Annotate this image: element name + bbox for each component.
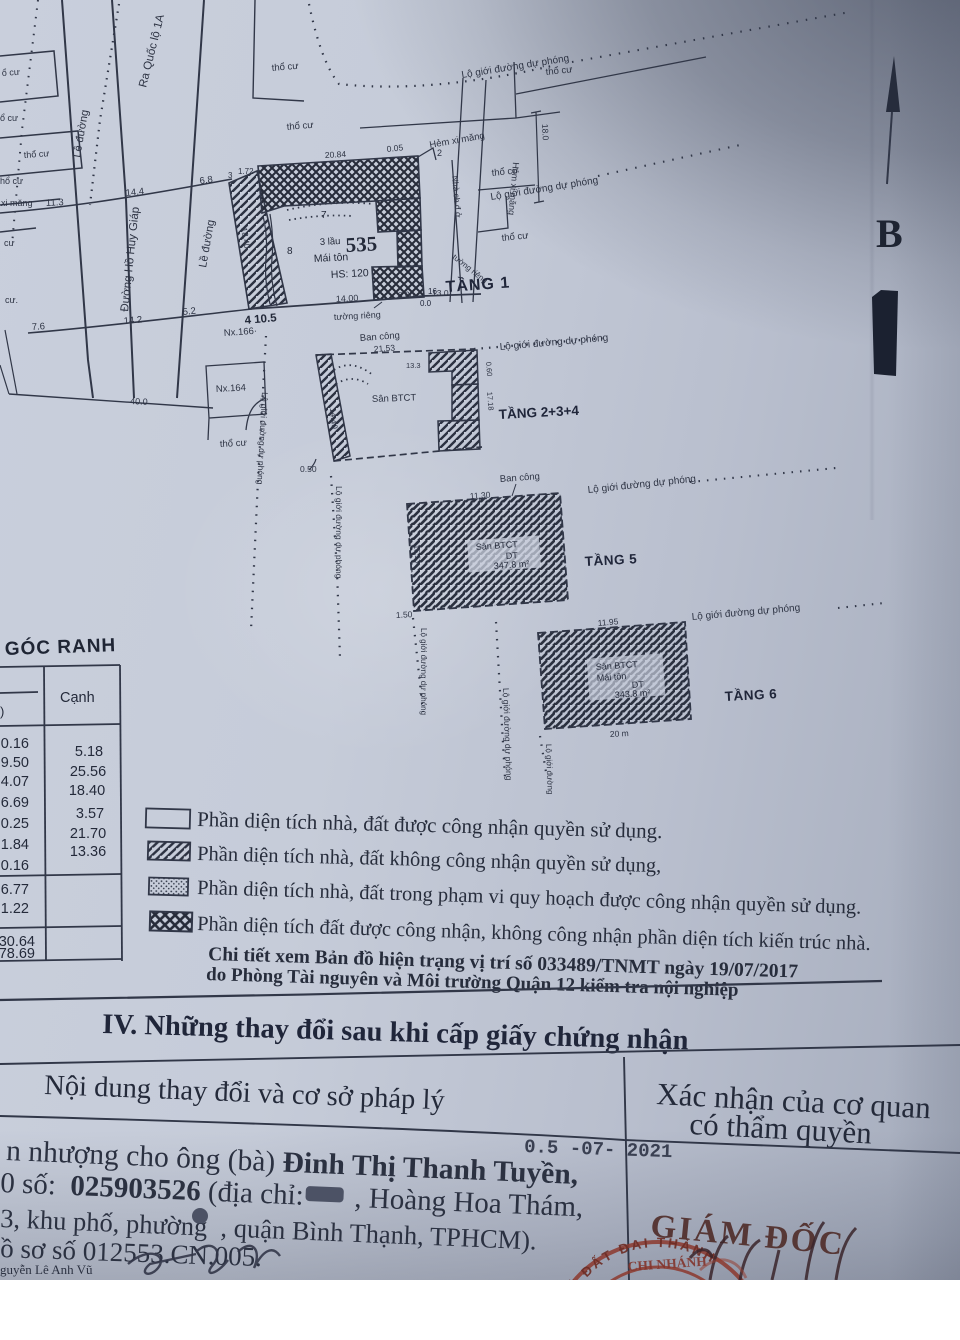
svg-text:6.00: 6.00 [398, 289, 415, 300]
svg-text:1.50: 1.50 [396, 609, 413, 620]
svg-text:6.69: 6.69 [1, 795, 29, 811]
svg-text:18.0: 18.0 [540, 124, 551, 141]
svg-text:Cạnh: Cạnh [60, 690, 95, 706]
svg-text:GÓC RANH: GÓC RANH [4, 634, 116, 660]
svg-text:cư: cư [4, 238, 15, 248]
svg-text:HS: 120: HS: 120 [331, 267, 370, 281]
svg-text:Phần diện tích nhà, đất trong: Phần diện tích nhà, đất trong phạm vi qu… [197, 877, 862, 919]
svg-text:6.77: 6.77 [1, 882, 29, 898]
svg-text:thổ cư: thổ cư [220, 438, 248, 450]
svg-text:8: 8 [287, 246, 293, 257]
svg-text:Lộ giới đường dự phóng: Lộ giới đường dự phóng [691, 603, 800, 623]
svg-text:Lộ giới đường dự phóng: Lộ giới đường dự phóng [499, 333, 608, 353]
svg-text:0.05: 0.05 [386, 142, 404, 154]
svg-text:9.50: 9.50 [1, 755, 29, 771]
svg-text:Lộ giới đường: Lộ giới đường [544, 744, 555, 795]
svg-text:5.18: 5.18 [75, 744, 103, 760]
svg-text:Sân BTCT: Sân BTCT [372, 392, 417, 405]
svg-text:4 10.5: 4 10.5 [244, 312, 277, 327]
svg-text:B: B [876, 211, 903, 256]
svg-text:7.6: 7.6 [31, 321, 45, 333]
svg-text:3.57: 3.57 [76, 806, 104, 822]
svg-text:Lộ giới đường dự phóng: Lộ giới đường dự phóng [334, 486, 344, 579]
svg-text:TẦNG 5: TẦNG 5 [584, 551, 637, 569]
svg-text:Đường Hồ Huy Giáp: Đường Hồ Huy Giáp [119, 206, 142, 312]
svg-text:Phần diện tích nhà, đất được c: Phần diện tích nhà, đất được công nhận q… [197, 807, 663, 843]
svg-text:13.3: 13.3 [406, 361, 421, 370]
svg-text:14.2: 14.2 [123, 314, 142, 327]
svg-text:Nx.164: Nx.164 [216, 382, 247, 395]
svg-text:hổ cư: hổ cư [0, 176, 23, 186]
svg-text:TẦNG 2+3+4: TẦNG 2+3+4 [498, 403, 579, 422]
svg-text:Nội dung thay đổi và cơ sở phá: Nội dung thay đổi và cơ sở pháp lý [44, 1070, 446, 1116]
svg-text:ổ cư: ổ cư [1, 67, 20, 78]
svg-text:20 m: 20 m [610, 728, 629, 739]
svg-text:cư.: cư. [5, 295, 18, 305]
svg-text:Mái tôn: Mái tôn [314, 251, 349, 265]
svg-text:Lộ giới đường dự phóng: Lộ giới đường dự phóng [419, 628, 428, 715]
svg-text:17.18: 17.18 [485, 391, 496, 410]
svg-text:4.07: 4.07 [1, 774, 29, 790]
svg-text:14.4: 14.4 [125, 186, 145, 199]
svg-text:1.22: 1.22 [1, 901, 29, 917]
svg-text:): ) [0, 704, 4, 719]
svg-text:2: 2 [437, 148, 442, 158]
svg-text:0.16: 0.16 [1, 736, 29, 752]
svg-text:IV. Những thay đổi sau khi cấp: IV. Những thay đổi sau khi cấp giấy chứn… [102, 1009, 689, 1056]
svg-text:21.53: 21.53 [373, 343, 395, 354]
svg-text:1.72: 1.72 [238, 167, 254, 176]
svg-text:40.0: 40.0 [130, 396, 148, 407]
svg-text:78.69: 78.69 [0, 946, 35, 962]
svg-text:16: 16 [428, 287, 437, 296]
svg-text:thổ cư: thổ cư [271, 61, 299, 74]
svg-text:Lề đường: Lề đường [197, 219, 217, 269]
svg-text:Lộ giới đường dự phóng: Lộ giới đường dự phóng [255, 392, 270, 485]
svg-text:18.40: 18.40 [69, 783, 105, 799]
svg-text:0.0: 0.0 [420, 299, 432, 308]
svg-text:Lộ giới đường dự phóng: Lộ giới đường dự phóng [587, 474, 696, 496]
svg-text:thổ cư: thổ cư [23, 148, 49, 160]
svg-text:ổ cư: ổ cư [0, 113, 18, 123]
svg-text:Nx.166·: Nx.166· [223, 326, 257, 339]
svg-text:5.2: 5.2 [182, 306, 196, 318]
svg-text:15.53: 15.53 [412, 544, 423, 563]
svg-text:CHI NHÁNH: CHI NHÁNH [627, 1253, 707, 1274]
svg-text:20.84: 20.84 [325, 149, 347, 160]
svg-text:3 lầu: 3 lầu [320, 236, 341, 248]
svg-text:Ra Quốc lộ 1A: Ra Quốc lộ 1A [137, 13, 167, 89]
svg-text:Mái tôn: Mái tôn [596, 671, 626, 683]
svg-text:thổ cư: thổ cư [501, 230, 530, 244]
svg-text:0.60: 0.60 [484, 361, 494, 376]
svg-text:xi măng: xi măng [1, 198, 33, 208]
svg-text:TẦNG 1: TẦNG 1 [445, 273, 511, 296]
svg-text:tường riêng: tường riêng [334, 310, 381, 322]
svg-text:0.25: 0.25 [1, 816, 29, 832]
svg-text:thổ cư: thổ cư [286, 120, 314, 133]
svg-text:Phần diện tích nhà, đất không: Phần diện tích nhà, đất không công nhận … [197, 843, 662, 877]
svg-text:0.16: 0.16 [1, 858, 29, 874]
svg-text:0.50: 0.50 [300, 464, 317, 474]
svg-text:11.95: 11.95 [597, 616, 619, 628]
svg-text:Lộ giới đường dự phóng: Lộ giới đường dự phóng [490, 175, 599, 203]
svg-text:Lộ giới đường dự phóng: Lộ giới đường dự phóng [501, 688, 514, 781]
svg-text:Ban công: Ban công [499, 471, 540, 485]
svg-text:14.00: 14.00 [336, 293, 359, 304]
svg-text:TẦNG 6: TẦNG 6 [724, 686, 777, 704]
svg-text:Lề đường: Lề đường [71, 109, 91, 159]
svg-text:1.84: 1.84 [1, 837, 29, 853]
svg-text:7: 7 [321, 210, 327, 221]
svg-text:6.8: 6.8 [199, 174, 214, 187]
svg-text:guyễn Lê Anh Vũ: guyễn Lê Anh Vũ [0, 1262, 93, 1277]
svg-text:25.56: 25.56 [70, 764, 106, 780]
svg-text:3: 3 [228, 171, 233, 180]
svg-text:13.36: 13.36 [70, 844, 106, 860]
svg-text:Nhà ch.đ ở: Nhà ch.đ ở [450, 175, 464, 218]
svg-text:535: 535 [345, 231, 378, 257]
svg-text:11.3: 11.3 [46, 197, 64, 209]
svg-text:21.70: 21.70 [70, 826, 106, 842]
svg-text:14.40: 14.40 [328, 407, 340, 429]
